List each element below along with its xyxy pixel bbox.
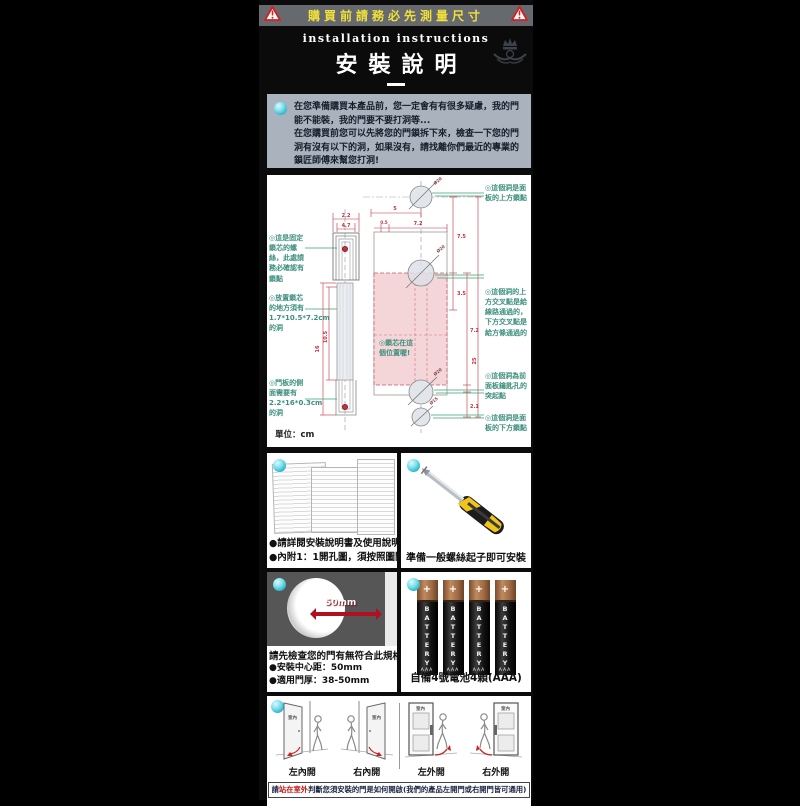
battery-plus: +	[495, 580, 516, 602]
battery-image: + BATTERYAAA	[417, 580, 438, 666]
intro-note: 在您準備購買本產品前，您一定會有有很多疑慮，我的門 能不能裝，我的門要不要打洞等…	[267, 94, 531, 168]
warning-triangle-icon	[511, 6, 528, 25]
manual-bullet-2: ●內附1：1開孔圖，須按照圖開孔	[267, 551, 397, 565]
door-right-outward: 室內 右外開	[465, 699, 527, 778]
door-direction-label: 左內開	[271, 765, 333, 778]
battery-brand-text: BATTERY	[423, 605, 431, 668]
diagram-label-top-lockpoint: ◎這個洞是面板的上方鎖點	[485, 183, 530, 203]
title-underline	[387, 83, 405, 86]
manual-section: ●請詳閱安裝說明書及使用說明書 ●內附1：1開孔圖，須按照圖開孔	[267, 453, 397, 568]
bullet-sphere-icon	[273, 578, 286, 591]
battery-image: + BATTERYAAA	[443, 580, 464, 666]
svg-text:室內: 室內	[372, 714, 381, 721]
svg-text:2.2: 2.2	[342, 213, 351, 219]
svg-text:7.2: 7.2	[470, 328, 479, 334]
door-direction-section: 室內 左內開	[267, 696, 531, 806]
bullet-sphere-icon	[407, 459, 420, 472]
divider	[399, 703, 400, 769]
hole-bullet-2: ●適用門厚：38-50mm	[267, 675, 397, 688]
hole-circle	[287, 578, 345, 638]
svg-text:10.5: 10.5	[323, 330, 329, 343]
diagram-label-cross-holes: ◎這個洞的上方交叉點是給線路通過的，下方交叉點是給方條通過的	[485, 287, 530, 338]
door-hole-image: 50mm	[267, 572, 397, 646]
diagram-unit-label: 單位：cm	[275, 428, 314, 440]
diagram-label-edge-hole: ◎門板的側面需要有2.2*16*0.3cm的洞	[269, 378, 305, 419]
distance-arrow-icon	[313, 612, 379, 616]
door-left-outward: 室內 左外開	[400, 699, 462, 778]
arrow-distance-label: 50mm	[325, 598, 356, 608]
door-direction-caption: 請站在室外判斷您須安裝的門是如何開啟(我們的產品左開門或右開門皆可通用)	[268, 782, 531, 798]
batteries-image: + BATTERYAAA + BATTERYAAA + BATTERYAAA	[401, 572, 531, 666]
door-direction-row: 室內 左內開	[267, 699, 531, 778]
warning-triangle-icon	[264, 6, 281, 25]
diagram-label-bottom-lockpoint: ◎這個洞是面板的下方鎖點	[485, 413, 530, 433]
hole-bullet-1: ●安裝中心距：50mm	[267, 662, 397, 675]
svg-text:Ø20: Ø20	[435, 244, 445, 254]
battery-image: + BATTERYAAA	[495, 580, 516, 666]
screwdriver-image	[401, 453, 531, 549]
svg-text:7.2: 7.2	[414, 221, 423, 227]
svg-text:7.5: 7.5	[457, 234, 466, 240]
battery-plus: +	[443, 580, 464, 602]
battery-image: + BATTERYAAA	[469, 580, 490, 666]
svg-text:5: 5	[393, 206, 397, 212]
caption-pre: 請	[272, 785, 279, 794]
content-column: 購買前請務必先測量尺寸 installation instructions 安裝…	[259, 0, 533, 800]
hole-title: 請先檢查您的門有無符合此規格	[267, 648, 397, 662]
bullet-sphere-icon	[407, 578, 420, 591]
svg-text:16: 16	[315, 345, 321, 352]
svg-text:Ø20: Ø20	[432, 176, 442, 186]
manual-page	[311, 467, 363, 533]
svg-text:室內: 室內	[416, 705, 425, 712]
manual-bullet-1: ●請詳閱安裝說明書及使用說明書	[267, 537, 397, 551]
svg-text:0.5: 0.5	[380, 220, 388, 225]
door-direction-label: 右外開	[465, 765, 527, 778]
diagram-label-keyhole-boss: ◎這個洞為前面板鑰匙孔的突起點	[485, 371, 530, 401]
diagram-label-screw: ◎這是固定鎖芯的螺絲，此處請務必確認有鎖點	[269, 233, 305, 284]
door-left-inward: 室內 左內開	[271, 699, 333, 778]
svg-text:3.5: 3.5	[457, 291, 466, 297]
brand-emblem-logo	[490, 32, 530, 76]
battery-brand-text: BATTERY	[449, 605, 457, 668]
svg-text:室內: 室內	[501, 705, 510, 712]
svg-text:2.1: 2.1	[470, 404, 479, 410]
lock-dimension-diagram: 2.2 4.7 16 10.5	[267, 175, 531, 447]
intro-text: 在您準備購買本產品前，您一定會有有很多疑慮，我的門 能不能裝，我的門要不要打洞等…	[294, 101, 526, 169]
diagram-label-core-pos: ◎鎖芯在這個位置喔!	[379, 338, 419, 358]
battery-plus: +	[469, 580, 490, 602]
manual-page	[357, 459, 395, 535]
door-direction-label: 左外開	[400, 765, 462, 778]
bullet-sphere-icon	[274, 102, 287, 115]
door-right-inward: 室內 右內開	[336, 699, 398, 778]
screwdriver-caption: 準備一般螺絲起子即可安裝	[401, 549, 531, 564]
hole-spec-section: 50mm 請先檢查您的門有無符合此規格 ●安裝中心距：50mm ●適用門厚：38…	[267, 572, 397, 692]
door-direction-label: 右內開	[336, 765, 398, 778]
page-header: installation instructions 安裝說明	[259, 32, 533, 86]
warning-banner: 購買前請務必先測量尺寸	[259, 5, 533, 26]
caption-post: 判斷您須安裝的門是如何開啟(我們的產品左開門或右開門皆可通用)	[308, 785, 526, 794]
battery-brand-text: BATTERY	[501, 605, 509, 668]
svg-text:25: 25	[472, 357, 478, 364]
svg-text:室內: 室內	[288, 714, 297, 721]
battery-section: + BATTERYAAA + BATTERYAAA + BATTERYAAA	[401, 572, 531, 692]
caption-highlight: 站在室外	[279, 785, 308, 794]
diagram-label-core-hole: ◎放置鎖芯的地方須有1.7*10.5*7.2cm的洞	[269, 293, 305, 334]
screwdriver-section: 準備一般螺絲起子即可安裝	[401, 453, 531, 568]
battery-brand-text: BATTERY	[475, 605, 483, 668]
bullet-sphere-icon	[273, 459, 286, 472]
warning-text: 購買前請務必先測量尺寸	[308, 7, 484, 24]
svg-text:4.7: 4.7	[342, 223, 351, 229]
manual-pages-image	[267, 453, 397, 537]
battery-caption: 自備4號電池4顆(AAA)	[401, 670, 531, 685]
